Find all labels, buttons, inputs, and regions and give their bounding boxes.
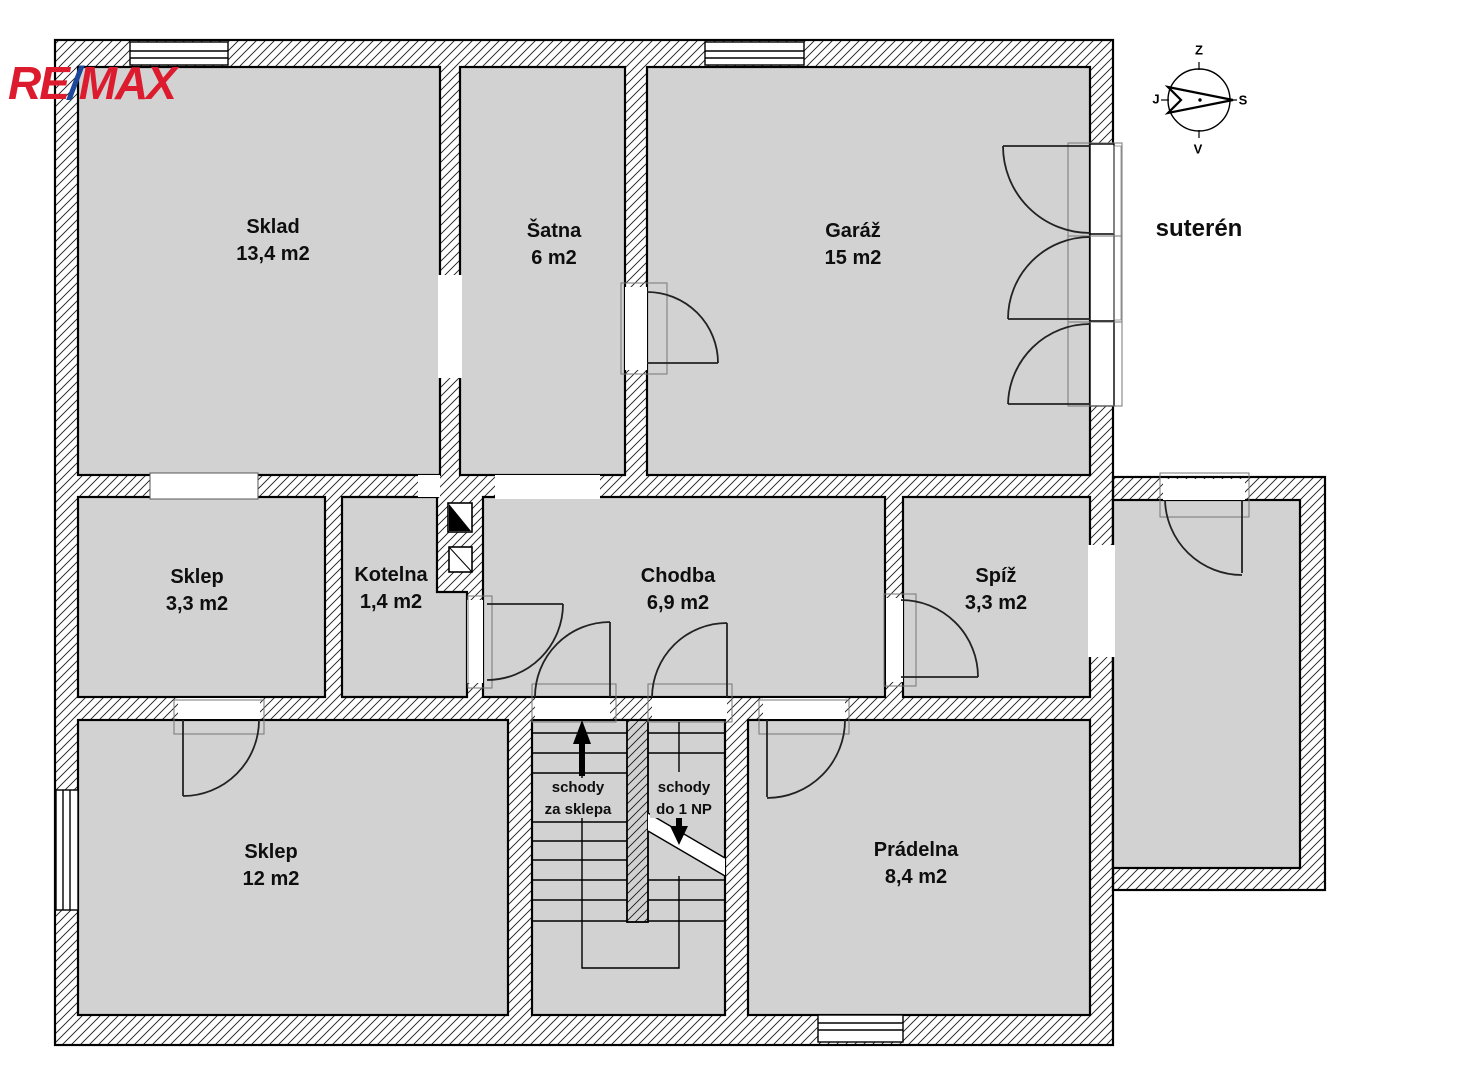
label-schody-za-sklepa: schody za sklepa bbox=[545, 777, 612, 821]
window-pradelna-bottom bbox=[818, 1015, 903, 1042]
room-name: Šatna bbox=[527, 218, 581, 245]
stair-text: schody bbox=[656, 777, 712, 799]
room-area: 12 m2 bbox=[243, 866, 300, 893]
room-name: Sklep bbox=[243, 839, 300, 866]
label-schody-do-1np: schody do 1 NP bbox=[656, 777, 712, 821]
room-area: 3,3 m2 bbox=[965, 590, 1027, 617]
stair-text: do 1 NP bbox=[656, 799, 712, 821]
room-name: Spíž bbox=[965, 563, 1027, 590]
window-garaz-top bbox=[705, 42, 804, 65]
garage-door-sill bbox=[1114, 146, 1121, 320]
compass-label-west: J bbox=[1152, 92, 1159, 107]
room-annex bbox=[1113, 500, 1300, 868]
label-kotelna: Kotelna 1,4 m2 bbox=[354, 562, 427, 616]
room-name: Sklep bbox=[166, 564, 228, 591]
stair-text: schody bbox=[545, 777, 612, 799]
room-sklad bbox=[78, 67, 440, 475]
room-area: 3,3 m2 bbox=[166, 591, 228, 618]
garage-door-opening bbox=[1090, 144, 1114, 406]
room-area: 13,4 m2 bbox=[236, 241, 309, 268]
logo-re: RE bbox=[8, 57, 68, 109]
compass-label-north: Z bbox=[1195, 43, 1203, 58]
compass-icon bbox=[1161, 62, 1237, 138]
room-area: 8,4 m2 bbox=[874, 864, 958, 891]
label-chodba: Chodba 6,9 m2 bbox=[641, 563, 715, 617]
room-name: Kotelna bbox=[354, 562, 427, 589]
opening-spiz-annex bbox=[1088, 545, 1115, 657]
floorplan-drawing bbox=[0, 0, 1468, 1080]
room-name: Chodba bbox=[641, 563, 715, 590]
opening-small bbox=[418, 475, 440, 497]
label-satna: Šatna 6 m2 bbox=[527, 218, 581, 272]
label-sklep-velky: Sklep 12 m2 bbox=[243, 839, 300, 893]
logo-max: MAX bbox=[79, 57, 175, 109]
room-name: Prádelna bbox=[874, 837, 958, 864]
room-area: 1,4 m2 bbox=[354, 589, 427, 616]
label-pradelna: Prádelna 8,4 m2 bbox=[874, 837, 958, 891]
floor-title: suterén bbox=[1156, 215, 1243, 243]
remax-logo: RE/MAX bbox=[8, 60, 175, 106]
stair-divider-wall bbox=[627, 720, 648, 922]
opening-sklad-satna bbox=[438, 275, 462, 378]
opening-sklad-sklep bbox=[150, 473, 258, 499]
label-spiz: Spíž 3,3 m2 bbox=[965, 563, 1027, 617]
label-sklep-maly: Sklep 3,3 m2 bbox=[166, 564, 228, 618]
room-area: 6,9 m2 bbox=[641, 590, 715, 617]
compass-label-east: S bbox=[1239, 93, 1248, 108]
logo-slash: / bbox=[68, 57, 79, 109]
room-area: 15 m2 bbox=[825, 245, 882, 272]
room-area: 6 m2 bbox=[527, 245, 581, 272]
floorplan-suteren: RE/MAX Z S V J suterén Sklad 13,4 m2 Šat… bbox=[0, 0, 1468, 1080]
label-garaz: Garáž 15 m2 bbox=[825, 218, 882, 272]
window-sklep-left bbox=[56, 790, 78, 910]
opening-satna-chodba bbox=[495, 475, 600, 499]
label-sklad: Sklad 13,4 m2 bbox=[236, 214, 309, 268]
room-name: Sklad bbox=[236, 214, 309, 241]
stair-text: za sklepa bbox=[545, 799, 612, 821]
compass-label-south: V bbox=[1194, 142, 1203, 157]
room-name: Garáž bbox=[825, 218, 882, 245]
